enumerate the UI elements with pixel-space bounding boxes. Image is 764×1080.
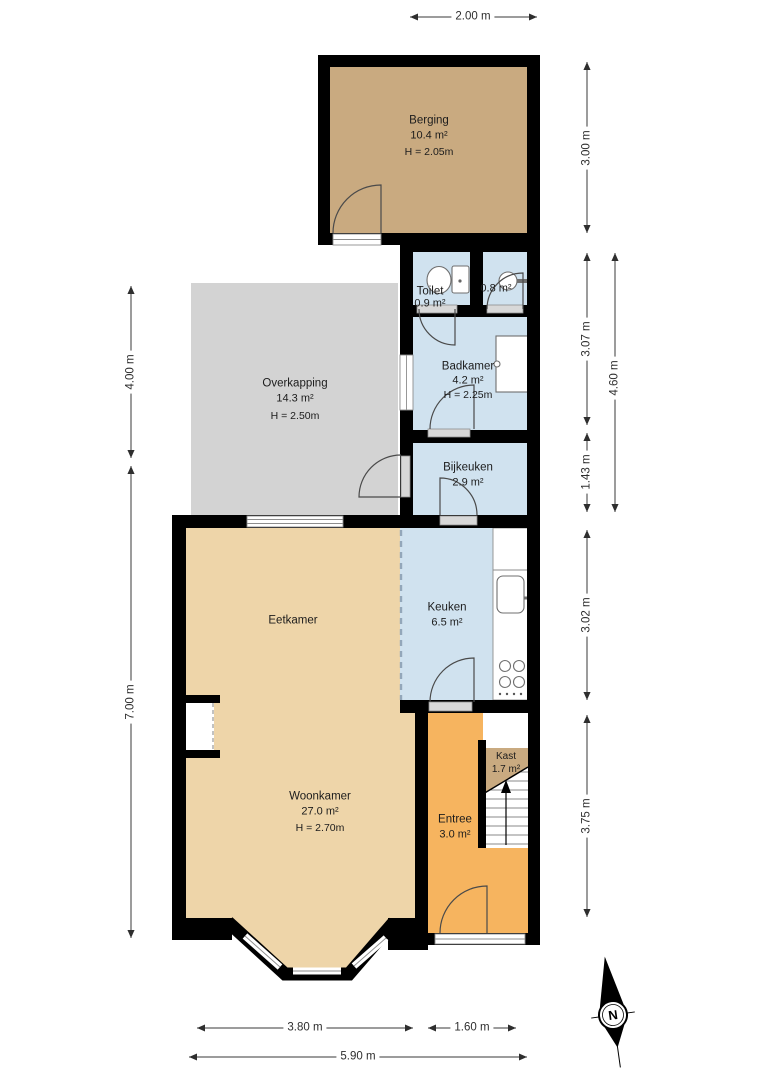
wall-top-living — [172, 515, 540, 528]
room-area-entree: 3.0 m² — [439, 830, 470, 841]
dim-label-right-5: 3.75 m — [581, 794, 594, 837]
kitchen-counter — [493, 528, 528, 700]
toilet-sink-drain-icon — [458, 279, 461, 282]
room-area-badkamer: 4.2 m² — [452, 376, 483, 387]
dim-label-left-upper: 4.00 m — [125, 350, 138, 393]
dim-label-bottom-right: 1.60 m — [450, 1022, 493, 1035]
dim-label-bottom-total: 5.90 m — [336, 1051, 379, 1064]
bijkeuken-door-threshold — [440, 516, 477, 525]
stove-burner-icon — [514, 661, 525, 672]
room-height-badkamer: H = 2.25m — [444, 390, 493, 401]
dim-label-top: 2.00 m — [451, 11, 494, 24]
room-label-entree: Entree — [438, 814, 472, 826]
stove-knob-icon — [506, 693, 508, 695]
stove-knob-icon — [520, 693, 522, 695]
floor-plan: Berging 10.4 m² H = 2.05m Overkapping 14… — [0, 0, 764, 1080]
compass-north-label: N — [607, 1007, 618, 1023]
stove-burner-icon — [500, 661, 511, 672]
stove-knob-icon — [499, 693, 501, 695]
room-area-toilet: 0.9 m² — [414, 299, 445, 310]
stove-burner-icon — [514, 677, 525, 688]
dim-label-right-1: 3.00 m — [581, 126, 594, 169]
wall-left-living — [172, 515, 186, 940]
room-label-toilet: Toilet — [417, 286, 444, 298]
room-label-berging: Berging — [409, 115, 449, 127]
floor-plan-drawing — [0, 0, 764, 1080]
room-label-kast: Kast — [496, 752, 516, 762]
niche-recess — [186, 703, 214, 750]
dim-label-right-mid: 4.60 m — [609, 356, 622, 399]
eetkamer-window — [247, 516, 343, 527]
keuken-door-threshold — [429, 702, 472, 711]
room-height-overkapping: H = 2.50m — [271, 411, 320, 422]
wall-woonkamer-entree — [415, 700, 428, 945]
wall-right-outer — [527, 55, 540, 945]
compass-north-arrow — [593, 955, 624, 1008]
room-label-overkapping: Overkapping — [262, 378, 327, 390]
room-height-woonkamer: H = 2.70m — [296, 823, 345, 834]
room-area-keuken: 6.5 m² — [431, 618, 462, 629]
dim-label-right-2: 3.07 m — [581, 317, 594, 360]
room-area-bijkeuken: 2.9 m² — [452, 478, 483, 489]
room-label-woonkamer: Woonkamer — [289, 791, 351, 803]
room-label-badkamer: Badkamer — [442, 361, 494, 373]
room-label-keuken: Keuken — [427, 602, 466, 614]
washroom-door-threshold — [487, 305, 523, 313]
shower-knob-icon — [494, 361, 500, 367]
shower-icon — [496, 336, 528, 392]
wall-bottom-left — [172, 918, 232, 940]
room-height-berging: H = 2.05m — [405, 147, 454, 158]
room-area-washroom: 0.8 m² — [480, 284, 511, 295]
wall-stairs — [478, 740, 486, 848]
room-area-woonkamer: 27.0 m² — [301, 807, 338, 818]
niche-cap-bottom — [186, 750, 220, 758]
room-area-overkapping: 14.3 m² — [276, 394, 313, 405]
room-area-kast: 1.7 m² — [492, 765, 520, 775]
badkamer-door-threshold — [428, 429, 470, 437]
room-area-berging: 10.4 m² — [410, 131, 447, 142]
dim-label-bottom-left: 3.80 m — [283, 1022, 326, 1035]
dim-label-right-4: 3.02 m — [581, 593, 594, 636]
dim-label-right-3: 1.43 m — [581, 450, 594, 493]
stove-burner-icon — [500, 677, 511, 688]
stove-knob-icon — [513, 693, 515, 695]
kitchen-sink-icon — [497, 576, 524, 613]
dim-label-left-lower: 7.00 m — [125, 680, 138, 723]
room-label-eetkamer: Eetkamer — [268, 615, 317, 627]
overkapping-door-threshold — [401, 456, 410, 497]
niche-cap-top — [186, 695, 220, 703]
room-label-bijkeuken: Bijkeuken — [443, 462, 493, 474]
